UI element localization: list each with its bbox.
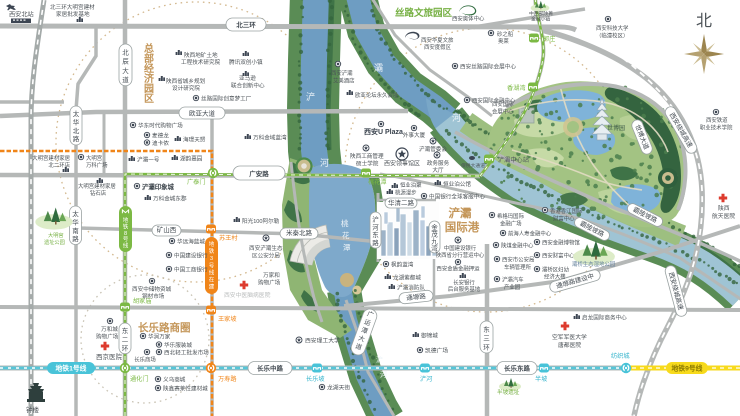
svg-text:购物广场: 购物广场 <box>258 279 281 287</box>
svg-text:凯德广场: 凯德广场 <box>425 347 448 355</box>
svg-text:花: 花 <box>342 230 350 240</box>
svg-text:空军军医大学: 空军军医大学 <box>552 333 587 341</box>
svg-text:会展中心: 会展中心 <box>492 108 514 116</box>
svg-text:西安金融博物馆: 西安金融博物馆 <box>542 239 580 247</box>
svg-text:西北轻工批发市场: 西北轻工批发市场 <box>164 349 209 357</box>
svg-text:钟楼: 钟楼 <box>26 405 40 414</box>
svg-text:通化门: 通化门 <box>130 375 149 383</box>
svg-text:在: 在 <box>209 276 215 284</box>
svg-text:西安度假区: 西安度假区 <box>424 43 452 51</box>
svg-text:遗址公园: 遗址公园 <box>44 238 65 246</box>
svg-text:路: 路 <box>372 238 379 247</box>
svg-text:家居批发基地: 家居批发基地 <box>56 10 90 18</box>
svg-text:区: 区 <box>144 93 154 105</box>
svg-text:区公安分局: 区公安分局 <box>252 252 280 260</box>
svg-text:设计研究院: 设计研究院 <box>172 84 200 92</box>
svg-text:西安浐灞: 西安浐灞 <box>331 69 353 77</box>
svg-text:万科金域蓝湾: 万科金域蓝湾 <box>253 134 287 142</box>
svg-text:麦德龙: 麦德龙 <box>152 132 169 140</box>
svg-text:地铁9号线: 地铁9号线 <box>672 364 703 373</box>
svg-text:半坡: 半坡 <box>535 375 547 383</box>
svg-text:郭庄: 郭庄 <box>543 35 555 43</box>
svg-text:太: 太 <box>72 209 79 218</box>
svg-text:长安银行: 长安银行 <box>453 279 475 287</box>
svg-text:华: 华 <box>72 217 79 226</box>
svg-text:西安北站: 西安北站 <box>9 11 34 19</box>
svg-text:苏王村: 苏王村 <box>219 234 238 242</box>
svg-text:北三环: 北三环 <box>236 20 256 29</box>
svg-text:纺织城: 纺织城 <box>611 352 630 360</box>
svg-text:浐灞中心站: 浐灞中心站 <box>498 156 529 164</box>
svg-text:道: 道 <box>122 75 129 84</box>
svg-text:世博园: 世博园 <box>607 124 625 132</box>
svg-text:陕鑫赛莱性建材城: 陕鑫赛莱性建材城 <box>163 385 208 393</box>
svg-text:线: 线 <box>123 242 129 250</box>
svg-text:腾讯双创小镇: 腾讯双创小镇 <box>229 58 263 66</box>
svg-text:西安U Plaza: 西安U Plaza <box>364 127 403 136</box>
svg-text:半坡遗址: 半坡遗址 <box>497 388 520 396</box>
svg-text:陕西工商管理: 陕西工商管理 <box>350 152 384 160</box>
svg-text:浐河: 浐河 <box>420 375 432 383</box>
svg-text:北: 北 <box>122 49 129 57</box>
svg-text:西安科技大学: 西安科技大学 <box>596 24 629 32</box>
svg-text:西安铁道: 西安铁道 <box>706 116 728 124</box>
svg-text:地: 地 <box>123 216 129 224</box>
svg-text:丝路国际创意梦工厂: 丝路国际创意梦工厂 <box>201 95 252 103</box>
svg-text:万家和: 万家和 <box>263 271 280 279</box>
svg-text:线: 线 <box>209 268 215 276</box>
svg-text:香湖湾: 香湖湾 <box>507 84 526 92</box>
svg-text:广泰门: 广泰门 <box>187 178 206 186</box>
svg-text:恒业泊聚: 恒业泊聚 <box>400 181 422 189</box>
svg-text:灞: 灞 <box>374 63 383 73</box>
svg-text:产业园: 产业园 <box>504 283 520 291</box>
svg-text:职业技术学院: 职业技术学院 <box>700 124 733 132</box>
svg-text:中国工商银行: 中国工商银行 <box>174 266 208 274</box>
svg-text:中国银行全球客服中心: 中国银行全球客服中心 <box>429 193 485 201</box>
svg-text:西安财富中心: 西安财富中心 <box>542 252 575 260</box>
svg-text:号: 号 <box>209 262 215 269</box>
svg-text:欧亚论坛永久会址: 欧亚论坛永久会址 <box>355 91 399 99</box>
svg-text:大厅: 大厅 <box>432 166 444 174</box>
svg-text:桃源漫步: 桃源漫步 <box>395 189 417 197</box>
svg-text:万寿路: 万寿路 <box>218 375 237 383</box>
svg-text:金融小镇: 金融小镇 <box>531 16 550 23</box>
svg-text:浐灞消防队: 浐灞消防队 <box>397 284 425 292</box>
svg-text:工程技术研究院: 工程技术研究院 <box>181 58 221 66</box>
svg-text:湖韵嘉园: 湖韵嘉园 <box>180 155 203 163</box>
svg-text:香港香江国际: 香港香江国际 <box>550 207 583 215</box>
svg-text:茂: 茂 <box>431 229 438 238</box>
svg-text:8: 8 <box>124 231 127 237</box>
svg-text:灞桥生态湿地公园: 灞桥生态湿地公园 <box>572 260 615 268</box>
svg-text:西安市公安局: 西安市公安局 <box>502 256 534 264</box>
svg-text:浐: 浐 <box>306 91 315 102</box>
svg-text:浐灞一号: 浐灞一号 <box>137 156 160 164</box>
svg-text:华东时代购物广场: 华东时代购物广场 <box>138 122 183 130</box>
svg-text:西安华夏文旅: 西安华夏文旅 <box>421 36 454 44</box>
svg-text:恒业泊公馆: 恒业泊公馆 <box>443 180 471 188</box>
svg-text:外事大厦: 外事大厦 <box>403 131 426 139</box>
svg-text:华清二路: 华清二路 <box>388 198 415 207</box>
svg-text:大明宫建材家居: 大明宫建材家居 <box>32 154 70 162</box>
svg-text:二: 二 <box>122 337 129 344</box>
svg-text:华乐服装城: 华乐服装城 <box>164 341 192 349</box>
svg-text:广安路: 广安路 <box>249 169 269 178</box>
svg-text:3: 3 <box>210 256 213 262</box>
svg-text:政务服务: 政务服务 <box>427 159 450 167</box>
svg-text:北二环店: 北二环店 <box>48 161 70 169</box>
svg-text:路: 路 <box>73 134 80 143</box>
svg-text:西安金盾金融押运: 西安金盾金融押运 <box>436 265 480 273</box>
svg-text:建: 建 <box>209 283 215 291</box>
svg-text:硕士学院: 硕士学院 <box>356 160 379 168</box>
svg-text:长乐中路: 长乐中路 <box>257 364 284 373</box>
svg-text:启龙国际商务中心: 启龙国际商务中心 <box>582 314 627 322</box>
svg-text:东: 东 <box>372 230 379 239</box>
svg-text:大明宫建材家居: 大明宫建材家居 <box>78 182 116 190</box>
svg-text:西安中医脑病医院: 西安中医脑病医院 <box>224 291 271 299</box>
svg-text:希格玛国际: 希格玛国际 <box>497 212 525 220</box>
svg-text:后台服务基地: 后台服务基地 <box>448 285 481 293</box>
svg-text:米秦北路: 米秦北路 <box>286 228 313 237</box>
svg-text:长乐东路: 长乐东路 <box>504 364 531 373</box>
svg-text:浐灞: 浐灞 <box>449 206 472 220</box>
svg-text:艾美酒店: 艾美酒店 <box>333 77 355 85</box>
svg-text:长乐商场: 长乐商场 <box>134 356 156 364</box>
svg-text:河: 河 <box>372 223 379 231</box>
svg-text:铁: 铁 <box>123 222 129 230</box>
svg-text:保税大通道: 保税大通道 <box>461 162 485 169</box>
svg-text:奥莱: 奥莱 <box>498 37 509 45</box>
svg-text:长乐坡: 长乐坡 <box>306 375 325 383</box>
svg-text:经济大楼: 经济大楼 <box>544 273 566 281</box>
svg-text:东: 东 <box>483 324 490 333</box>
svg-text:枫韵蓝湾: 枫韵蓝湾 <box>391 261 414 269</box>
svg-text:西安奥体中心: 西安奥体中心 <box>452 15 485 23</box>
svg-text:钻石店: 钻石店 <box>90 189 107 197</box>
svg-text:陕西省城乡规划: 陕西省城乡规划 <box>166 77 206 85</box>
svg-text:大: 大 <box>122 66 129 75</box>
svg-text:河: 河 <box>452 112 461 123</box>
svg-text:陕西: 陕西 <box>718 204 730 212</box>
svg-text:国际港: 国际港 <box>445 220 480 234</box>
svg-text:北: 北 <box>73 127 80 135</box>
svg-text:西安浐灞生态: 西安浐灞生态 <box>249 244 283 252</box>
svg-text:北三环大明宫建材: 北三环大明宫建材 <box>50 3 95 11</box>
svg-text:（临潼校区）: （临潼校区） <box>596 32 628 40</box>
svg-text:王家坡: 王家坡 <box>218 315 237 323</box>
svg-text:大明宫: 大明宫 <box>48 231 64 239</box>
svg-text:北: 北 <box>696 12 712 30</box>
svg-text:海璟天赟: 海璟天赟 <box>183 136 206 144</box>
svg-text:阳光100阿尔勒: 阳光100阿尔勒 <box>242 217 280 225</box>
svg-text:车辆管理所: 车辆管理所 <box>504 263 532 271</box>
svg-text:灞桥区妇幼: 灞桥区妇幼 <box>542 266 569 274</box>
svg-text:浐: 浐 <box>376 355 383 364</box>
svg-text:亚马逊: 亚马逊 <box>239 74 256 82</box>
svg-text:浐: 浐 <box>372 215 379 224</box>
svg-text:环: 环 <box>483 343 490 351</box>
svg-text:迪卡侬: 迪卡侬 <box>152 139 169 147</box>
svg-text:湾: 湾 <box>431 243 438 252</box>
svg-text:环: 环 <box>122 344 129 352</box>
svg-text:陕西地矿土地: 陕西地矿土地 <box>184 51 218 59</box>
svg-text:长乐路商圈: 长乐路商圈 <box>138 321 191 334</box>
svg-text:万和城: 万和城 <box>101 325 118 333</box>
svg-text:义乌商城: 义乌商城 <box>163 376 186 384</box>
svg-text:华远海蓝城: 华远海蓝城 <box>177 238 205 246</box>
svg-text:浐灞汽车: 浐灞汽车 <box>502 276 524 284</box>
svg-text:路: 路 <box>72 234 79 243</box>
svg-text:桃: 桃 <box>341 218 349 228</box>
svg-text:河: 河 <box>320 157 329 168</box>
svg-text:西安领事馆区: 西安领事馆区 <box>384 160 420 168</box>
svg-text:西安中储物资城: 西安中储物资城 <box>132 285 172 293</box>
svg-text:潭: 潭 <box>343 243 351 252</box>
svg-text:太: 太 <box>73 109 80 118</box>
svg-text:浐灞印象城: 浐灞印象城 <box>142 182 175 191</box>
svg-text:矿山西: 矿山西 <box>157 225 177 234</box>
svg-text:唐都医院: 唐都医院 <box>558 341 581 349</box>
svg-text:大明宫: 大明宫 <box>86 154 102 162</box>
svg-text:中西部陕菁: 中西部陕菁 <box>529 10 553 17</box>
svg-text:地: 地 <box>209 240 215 248</box>
svg-text:东: 东 <box>122 326 129 335</box>
svg-text:三: 三 <box>483 334 490 342</box>
svg-text:联合创新中心: 联合创新中心 <box>231 82 265 90</box>
svg-text:西京医院: 西京医院 <box>96 352 123 361</box>
svg-text:中国建设银行: 中国建设银行 <box>444 244 477 252</box>
svg-text:御锦城: 御锦城 <box>421 332 438 340</box>
svg-text:购物广场: 购物广场 <box>96 333 119 341</box>
svg-text:金融广场: 金融广场 <box>500 220 522 228</box>
svg-text:河: 河 <box>380 371 387 379</box>
svg-text:陕煤金融中心: 陕煤金融中心 <box>501 242 534 250</box>
svg-text:龙湖天街: 龙湖天街 <box>327 384 350 392</box>
svg-text:南: 南 <box>72 226 79 235</box>
svg-text:号: 号 <box>123 236 129 243</box>
svg-text:铁: 铁 <box>209 247 215 255</box>
svg-text:砂之船: 砂之船 <box>497 30 514 38</box>
svg-text:陕西省分行营运中心: 陕西省分行营运中心 <box>436 251 485 259</box>
svg-text:中国建设银行: 中国建设银行 <box>174 252 208 260</box>
svg-text:航天医院: 航天医院 <box>712 212 735 220</box>
svg-text:西安国际: 西安国际 <box>492 100 514 108</box>
svg-text:万科广场: 万科广场 <box>86 161 108 169</box>
svg-text:西安理工大学: 西安理工大学 <box>305 337 340 345</box>
svg-text:财富中心: 财富中心 <box>553 215 575 223</box>
svg-text:地铁1号线: 地铁1号线 <box>56 364 87 373</box>
svg-text:华: 华 <box>73 117 80 126</box>
svg-text:前海人寿金融中心: 前海人寿金融中心 <box>508 230 552 238</box>
svg-text:钢材市场: 钢材市场 <box>142 292 165 300</box>
svg-text:金: 金 <box>431 222 438 231</box>
svg-text:桃花潭: 桃花潭 <box>368 178 387 186</box>
svg-text:龙湖紫都城: 龙湖紫都城 <box>393 274 421 282</box>
svg-text:浐灞管委会: 浐灞管委会 <box>419 145 447 153</box>
svg-text:辰: 辰 <box>122 58 129 66</box>
svg-text:华润万家: 华润万家 <box>148 333 171 341</box>
svg-text:西安丝路国际会展中心: 西安丝路国际会展中心 <box>460 63 516 71</box>
svg-text:欧亚大道: 欧亚大道 <box>189 108 216 117</box>
svg-text:丝路文旅园区: 丝路文旅园区 <box>395 7 453 19</box>
svg-text:万科金城东郡: 万科金城东郡 <box>153 195 187 203</box>
svg-text:九: 九 <box>431 236 438 245</box>
